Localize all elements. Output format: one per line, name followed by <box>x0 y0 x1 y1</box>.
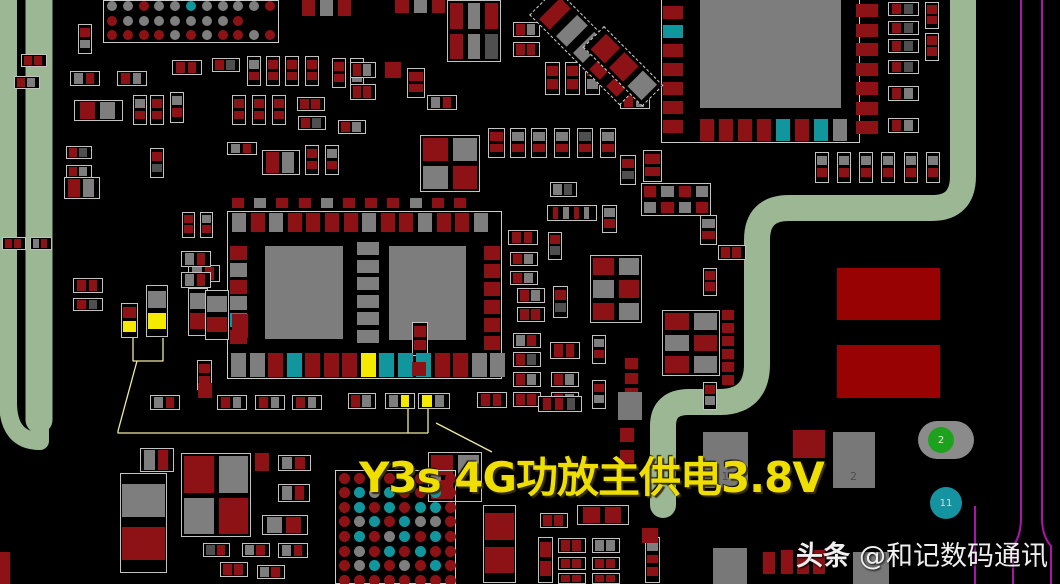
pcb-layout-canvas: 12211 Y3s 4G功放主供电3.8V 头条@和记数码通讯 <box>0 0 1060 584</box>
callout-line <box>118 361 428 433</box>
watermark-handle: @和记数码通讯 <box>859 541 1048 572</box>
watermark: 头条@和记数码通讯 <box>796 534 1048 573</box>
watermark-brand: 头条 <box>796 541 850 572</box>
net-annotation-label: Y3s 4G功放主供电3.8V <box>359 444 824 505</box>
callout-line <box>133 338 163 361</box>
